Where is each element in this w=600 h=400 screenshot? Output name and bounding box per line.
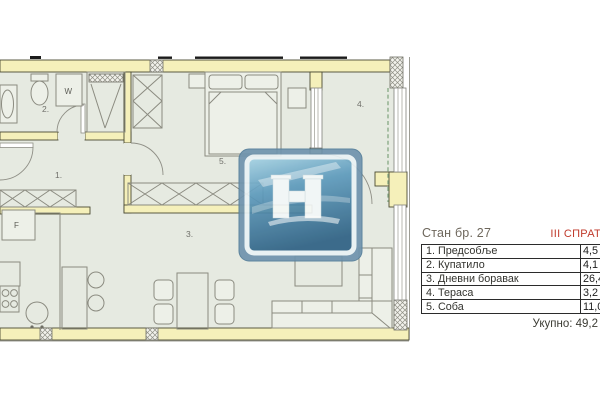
table-row: 3. Дневни боравак 26,4	[422, 272, 600, 286]
room-label-bathroom: 2.	[42, 104, 49, 114]
bathroom-wall-left	[0, 132, 58, 140]
room-area-cell: 26,4	[581, 272, 600, 286]
room-name-cell: 4. Тераса	[422, 286, 581, 300]
washing-machine-label: W	[65, 87, 73, 96]
room-area-cell: 3,2	[581, 286, 600, 300]
apartment-title: Стан бр. 27	[422, 226, 491, 240]
toilet-bowl	[31, 81, 48, 105]
fridge-label: F	[14, 221, 19, 230]
terrace-corner-wall-v	[389, 172, 407, 207]
floor-plan-page: W F	[0, 0, 600, 400]
dining-chair	[154, 304, 173, 324]
side-table	[288, 88, 306, 108]
top-wall	[0, 60, 390, 72]
room-label-living: 3.	[186, 229, 193, 239]
area-legend: Стан бр. 27 III СПРАТ 1. Предсобље 4,5 2…	[421, 226, 600, 330]
room-area-cell: 4,1	[581, 258, 600, 272]
area-table: 1. Предсобље 4,5 2. Купатило 4,1 3. Днев…	[421, 244, 600, 314]
bathroom-door-leaf	[81, 104, 85, 133]
floor-plan-drawing: W F	[0, 0, 600, 400]
company-watermark-logo	[239, 149, 362, 261]
toilet-tank	[31, 74, 48, 81]
dining-chair	[215, 304, 234, 324]
room-label-bedroom: 5.	[219, 156, 226, 166]
total-area: Укупно: 49,2	[421, 318, 598, 330]
table-row: 5. Соба 11,0	[422, 300, 600, 314]
room-area-cell: 4,5	[581, 245, 600, 259]
entrance-door-leaf	[0, 143, 33, 148]
dining-chair	[215, 280, 234, 300]
bedroom-door-opening	[124, 143, 131, 175]
dimension-ticks	[30, 56, 347, 59]
bed	[205, 72, 281, 156]
window-terrace	[311, 88, 322, 148]
room-name-cell: 3. Дневни боравак	[422, 272, 581, 286]
window-right-upper	[394, 88, 406, 172]
room-label-hallway: 1.	[55, 170, 62, 180]
nightstand	[189, 74, 205, 88]
room-name-cell: 1. Предсобље	[422, 245, 581, 259]
floor-tag: III СПРАТ	[550, 228, 600, 240]
bottom-wall	[0, 328, 409, 340]
table-row: 2. Купатило 4,1	[422, 258, 600, 272]
window-right-lower	[394, 205, 406, 300]
room-name-cell: 5. Соба	[422, 300, 581, 314]
legend-title-row: Стан бр. 27 III СПРАТ	[421, 226, 600, 244]
terrace-wall-top	[310, 72, 322, 90]
table-row: 1. Предсобље 4,5	[422, 245, 600, 259]
room-name-cell: 2. Купатило	[422, 258, 581, 272]
room-area-cell: 11,0	[581, 300, 600, 314]
dining-chair	[154, 280, 173, 300]
bathroom-door-opening	[58, 133, 85, 140]
room-label-terrace: 4.	[357, 99, 364, 109]
table-row: 4. Тераса 3,2	[422, 286, 600, 300]
